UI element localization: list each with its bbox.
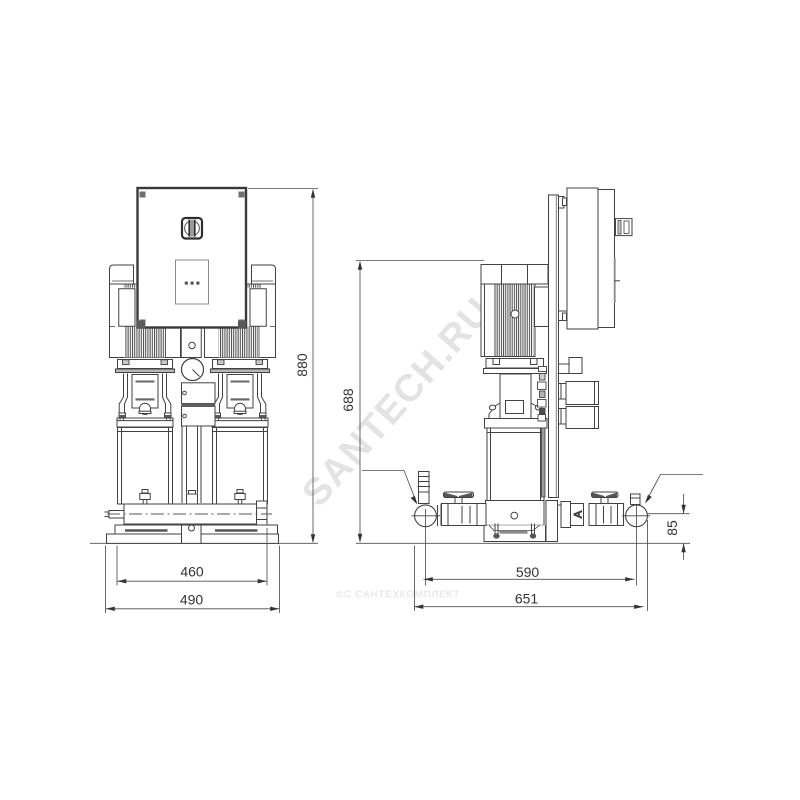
svg-text:©С САНТЕХКОМПЛЕКТ: ©С САНТЕХКОМПЛЕКТ xyxy=(336,590,460,601)
svg-text:460: 460 xyxy=(180,564,204,580)
svg-text:A: A xyxy=(572,510,584,518)
svg-text:490: 490 xyxy=(180,591,204,607)
svg-text:688: 688 xyxy=(340,388,356,412)
svg-text:590: 590 xyxy=(516,564,540,580)
svg-text:651: 651 xyxy=(515,591,539,607)
svg-text:880: 880 xyxy=(294,353,310,377)
svg-text:85: 85 xyxy=(664,520,680,536)
